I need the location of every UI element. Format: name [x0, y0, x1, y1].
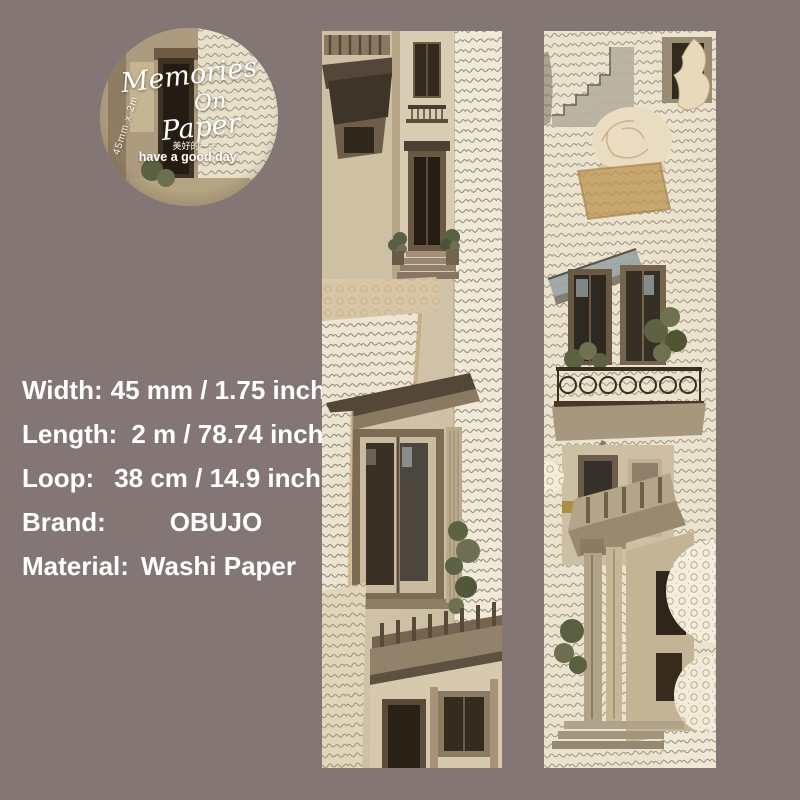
spec-label-length: Length: — [22, 419, 117, 449]
spec-row-length: Length:2 m / 78.74 inch — [22, 412, 326, 456]
left-top-building — [322, 31, 460, 279]
spec-label-width: Width: — [22, 375, 103, 405]
spec-label-brand: Brand: — [22, 507, 106, 537]
spec-row-width: Width:45 mm / 1.75 inch — [22, 368, 326, 412]
spec-label-material: Material: — [22, 551, 129, 581]
right-top-doorway — [662, 37, 712, 110]
product-image-background: Memories On Paper 45mm x 2m 美好的一天 have a… — [0, 0, 800, 800]
spec-row-material: Material:Washi Paper — [22, 544, 326, 588]
spec-label-loop: Loop: — [22, 463, 94, 493]
spec-row-loop: Loop:38 cm / 14.9 inch — [22, 456, 326, 500]
badge-tagline: have a good day. — [128, 150, 250, 164]
brand-badge: Memories On Paper 45mm x 2m 美好的一天 have a… — [100, 28, 278, 206]
washi-tape-strip-right — [544, 31, 716, 768]
tape-right-illustration — [544, 31, 716, 768]
spec-value-brand: OBUJO — [170, 507, 262, 537]
tape-left-illustration — [322, 31, 502, 768]
spec-value-width: 45 mm / 1.75 inch — [111, 375, 326, 405]
spec-row-brand: Brand:OBUJO — [22, 500, 326, 544]
washi-tape-strip-left — [322, 31, 502, 768]
product-specs: Width:45 mm / 1.75 inch Length:2 m / 78.… — [22, 368, 326, 588]
spec-value-loop: 38 cm / 14.9 inch — [114, 463, 321, 493]
spec-value-length: 2 m / 78.74 inch — [131, 419, 323, 449]
spec-value-material: Washi Paper — [141, 551, 296, 581]
